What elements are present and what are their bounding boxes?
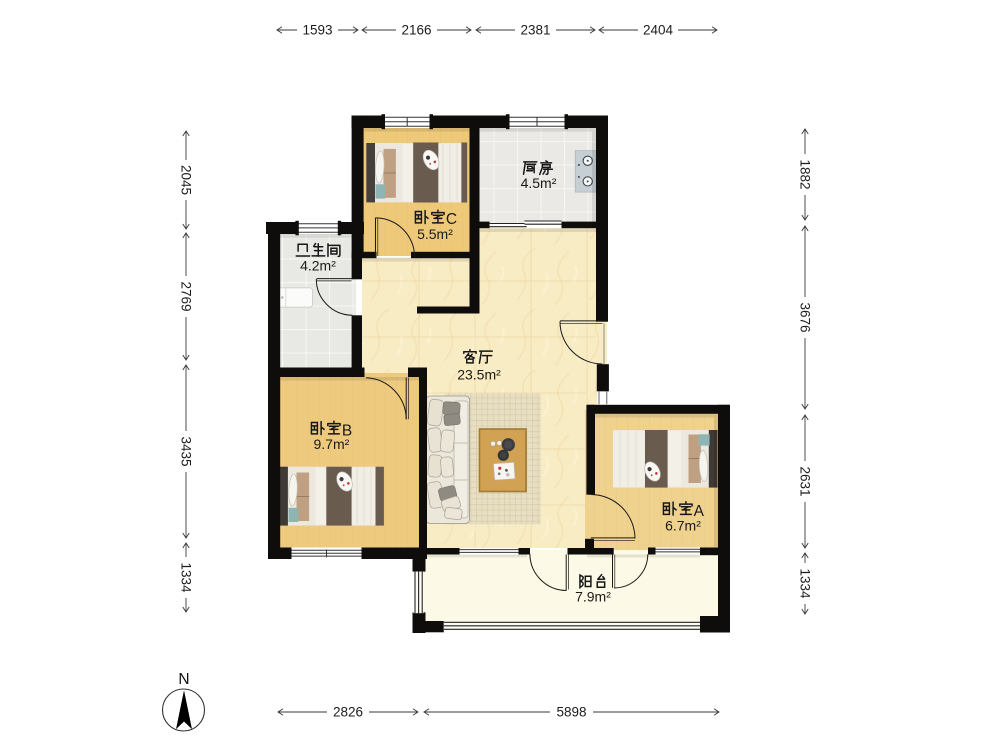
svg-text:2166: 2166 <box>401 23 431 38</box>
svg-text:5898: 5898 <box>556 705 586 720</box>
svg-text:2045: 2045 <box>179 165 194 195</box>
svg-text:2381: 2381 <box>520 23 550 38</box>
svg-text:6.7m²: 6.7m² <box>665 517 701 533</box>
svg-text:5.5m²: 5.5m² <box>417 226 453 242</box>
svg-text:1882: 1882 <box>798 159 813 189</box>
svg-text:2404: 2404 <box>643 23 674 38</box>
svg-text:3435: 3435 <box>179 436 194 466</box>
svg-text:1334: 1334 <box>179 562 194 593</box>
svg-text:3676: 3676 <box>798 302 813 332</box>
svg-text:2826: 2826 <box>333 705 363 720</box>
svg-text:N: N <box>178 671 189 688</box>
svg-text:9.7m²: 9.7m² <box>314 436 350 452</box>
svg-text:1334: 1334 <box>798 568 813 599</box>
svg-text:23.5m²: 23.5m² <box>457 366 501 382</box>
svg-text:2769: 2769 <box>179 281 194 311</box>
svg-text:7.9m²: 7.9m² <box>575 588 611 604</box>
svg-text:1593: 1593 <box>302 23 332 38</box>
svg-text:4.2m²: 4.2m² <box>300 258 336 274</box>
svg-text:2631: 2631 <box>798 466 813 496</box>
svg-text:4.5m²: 4.5m² <box>521 175 557 191</box>
